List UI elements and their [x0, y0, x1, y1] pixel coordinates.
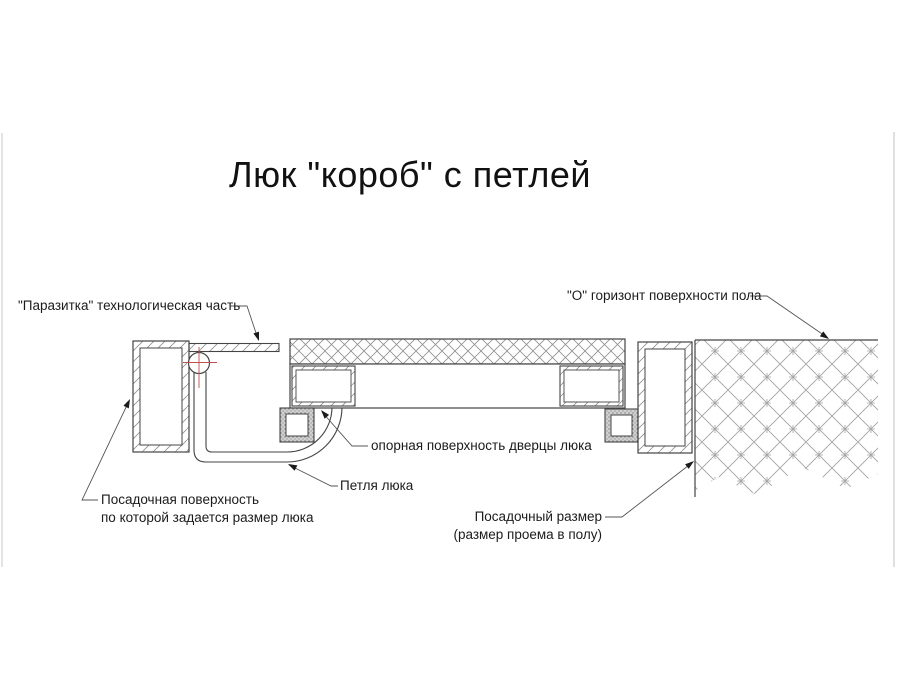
arrowhead-parasitka — [253, 332, 259, 341]
label-seating-surface: Посадочная поверхность по которой задает… — [101, 491, 314, 526]
arrowhead-hinge — [288, 464, 297, 471]
hinge-bracket-left — [280, 408, 314, 442]
label-floor-horizon: "О" горизонт поверхности пола — [567, 287, 762, 305]
leader-seating-surface — [82, 401, 129, 500]
arrowhead-door-support — [321, 410, 329, 419]
leader-hinge — [289, 465, 338, 486]
diagram-canvas: Люк "короб" с петлей "Паразитка" техноло… — [0, 0, 900, 700]
page-title: Люк "короб" с петлей — [0, 154, 820, 196]
left-frame-profile — [133, 341, 189, 452]
label-door-support-surface: опорная поверхность дверцы люка — [371, 437, 592, 455]
right-frame-profile — [638, 342, 692, 453]
label-seating-size: Посадочный размер (размер проема в полу) — [402, 508, 602, 543]
arrowhead-floor-horizon — [820, 331, 829, 339]
label-hinge: Петля люка — [340, 477, 413, 495]
label-parasitka: "Паразитка" технологическая часть — [18, 297, 240, 315]
leader-door-support — [322, 412, 368, 446]
label-seating-surface-line1: Посадочная поверхность — [101, 491, 314, 509]
label-seating-size-line1: Посадочный размер — [402, 508, 602, 526]
door-top-slab — [290, 339, 625, 364]
label-seating-size-line2: (размер проема в полу) — [402, 526, 602, 544]
door-body — [290, 364, 625, 408]
arrowhead-seating-size — [685, 461, 694, 469]
parasitka-bar — [189, 344, 279, 352]
support-bracket-right — [605, 409, 638, 442]
arrowhead-seating-surface — [123, 399, 130, 408]
label-seating-surface-line2: по которой задается размер люка — [101, 509, 314, 527]
leader-seating-size — [605, 462, 693, 517]
floor-mass — [695, 340, 878, 497]
technical-drawing — [0, 0, 900, 700]
